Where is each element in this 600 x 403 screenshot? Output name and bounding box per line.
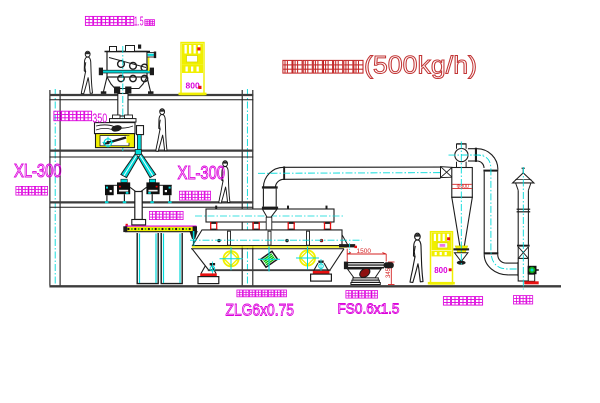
svg-text:1500: 1500 — [357, 248, 372, 255]
svg-text:800: 800 — [186, 81, 200, 91]
svg-text:XL-300: XL-300 — [14, 160, 62, 181]
svg-text:Φ800: Φ800 — [457, 184, 470, 190]
svg-text:345: 345 — [386, 267, 392, 278]
svg-text:1.5: 1.5 — [134, 15, 144, 29]
svg-text:350: 350 — [92, 111, 107, 126]
svg-text:800: 800 — [434, 266, 448, 275]
svg-text:FS0.6x1.5: FS0.6x1.5 — [338, 301, 400, 318]
svg-text:(500kg/h): (500kg/h) — [364, 52, 477, 80]
svg-text:ZLG6x0.75: ZLG6x0.75 — [226, 301, 295, 320]
svg-text:XL-300: XL-300 — [178, 162, 226, 183]
